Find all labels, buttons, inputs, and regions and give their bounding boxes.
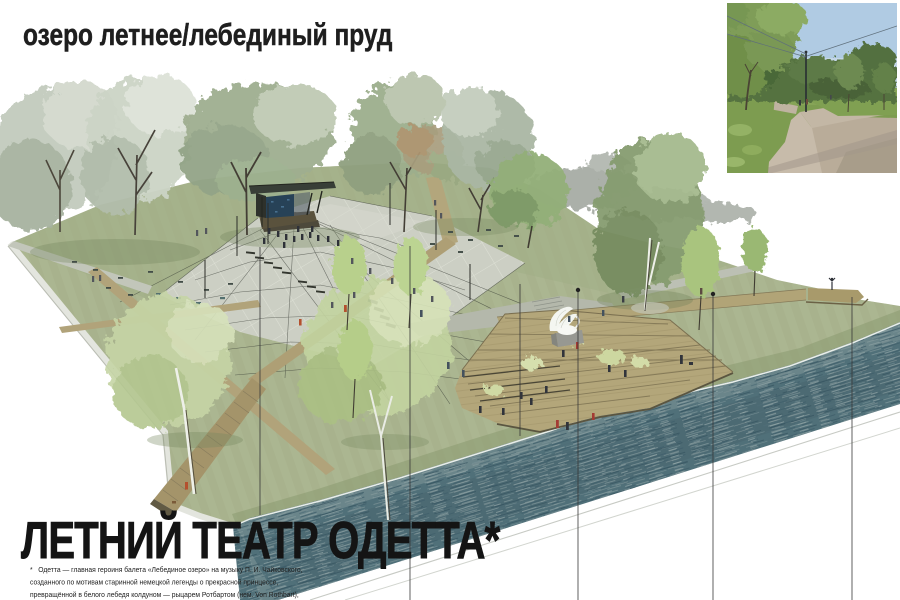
svg-text:озеро летнее/лебединый пруд: озеро летнее/лебединый пруд [23, 17, 393, 51]
svg-text:ЛЕТНИЙ ТЕАТР ОДЕТТА*: ЛЕТНИЙ ТЕАТР ОДЕТТА* [21, 511, 501, 569]
svg-text:превращённой в белого лебедя к: превращённой в белого лебедя колдуном — … [30, 591, 299, 599]
svg-text:* Одетта — главная героиня б: * Одетта — главная героиня балета «Лебед… [30, 566, 303, 574]
svg-text:созданного по мотивам старинно: созданного по мотивам старинной немецкой… [30, 578, 278, 586]
